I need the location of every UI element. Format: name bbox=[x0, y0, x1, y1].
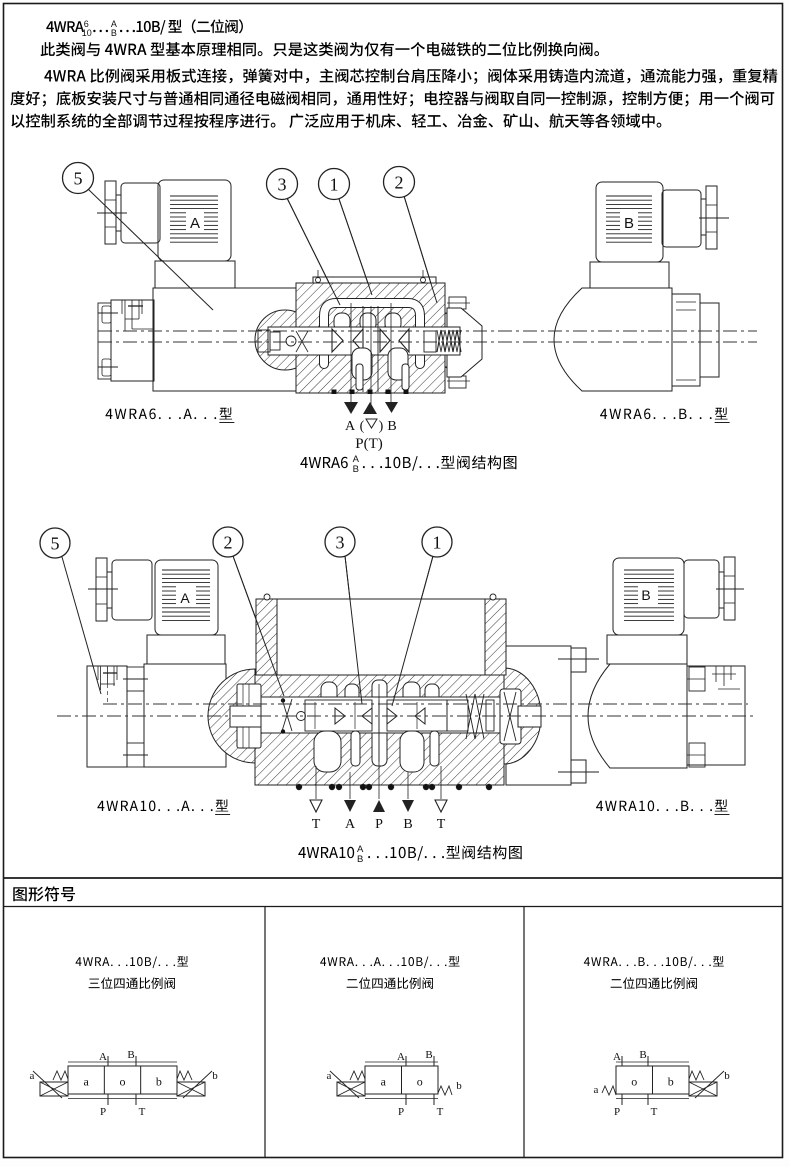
svg-text:10: 10 bbox=[82, 28, 92, 38]
svg-text:1: 1 bbox=[330, 175, 339, 195]
svg-text:o: o bbox=[417, 1075, 423, 1089]
svg-text:b: b bbox=[156, 1075, 162, 1089]
svg-text:A: A bbox=[613, 1051, 621, 1063]
svg-text:A: A bbox=[190, 215, 200, 232]
svg-text:(: ( bbox=[360, 419, 365, 434]
svg-text:B: B bbox=[639, 1049, 646, 1061]
svg-text:A: A bbox=[345, 817, 356, 832]
svg-text:B: B bbox=[387, 419, 396, 434]
svg-text:P: P bbox=[375, 817, 383, 832]
svg-text:T: T bbox=[651, 1106, 658, 1118]
svg-text:T: T bbox=[437, 817, 446, 832]
svg-text:b: b bbox=[456, 1080, 462, 1092]
svg-text:3: 3 bbox=[278, 175, 287, 195]
svg-text:T: T bbox=[312, 817, 321, 832]
svg-text:a: a bbox=[594, 1084, 599, 1096]
svg-text:P: P bbox=[614, 1106, 620, 1118]
svg-text:a: a bbox=[327, 1070, 332, 1082]
svg-text:A: A bbox=[345, 419, 356, 434]
svg-text:P(T): P(T) bbox=[355, 436, 383, 452]
svg-text:2: 2 bbox=[395, 173, 404, 193]
svg-text:P: P bbox=[398, 1106, 404, 1118]
svg-text:2: 2 bbox=[224, 533, 233, 553]
svg-text:B: B bbox=[641, 587, 650, 603]
svg-text:B: B bbox=[357, 854, 363, 865]
svg-text:b: b bbox=[724, 1070, 730, 1082]
svg-text:o: o bbox=[120, 1075, 126, 1089]
svg-text:1: 1 bbox=[433, 533, 442, 553]
svg-text:a: a bbox=[84, 1075, 90, 1089]
svg-text:o: o bbox=[631, 1075, 637, 1089]
svg-text:a: a bbox=[381, 1075, 387, 1089]
svg-text:T: T bbox=[139, 1106, 146, 1118]
svg-text:B: B bbox=[127, 1049, 134, 1061]
svg-text:A: A bbox=[180, 590, 190, 606]
svg-text:B: B bbox=[353, 464, 359, 475]
svg-text:b: b bbox=[212, 1070, 218, 1082]
svg-text:5: 5 bbox=[74, 169, 83, 189]
svg-text:a: a bbox=[30, 1070, 35, 1082]
svg-text:B: B bbox=[403, 817, 412, 832]
svg-text:B: B bbox=[425, 1049, 432, 1061]
svg-text:3: 3 bbox=[336, 533, 345, 553]
svg-text:A: A bbox=[397, 1051, 405, 1063]
svg-text:B: B bbox=[111, 28, 117, 38]
svg-text:B: B bbox=[624, 215, 634, 232]
svg-text:A: A bbox=[99, 1051, 107, 1063]
svg-text:5: 5 bbox=[51, 534, 60, 554]
svg-text:T: T bbox=[437, 1106, 444, 1118]
svg-text:b: b bbox=[668, 1075, 674, 1089]
svg-text:): ) bbox=[379, 419, 384, 434]
svg-text:P: P bbox=[100, 1106, 106, 1118]
